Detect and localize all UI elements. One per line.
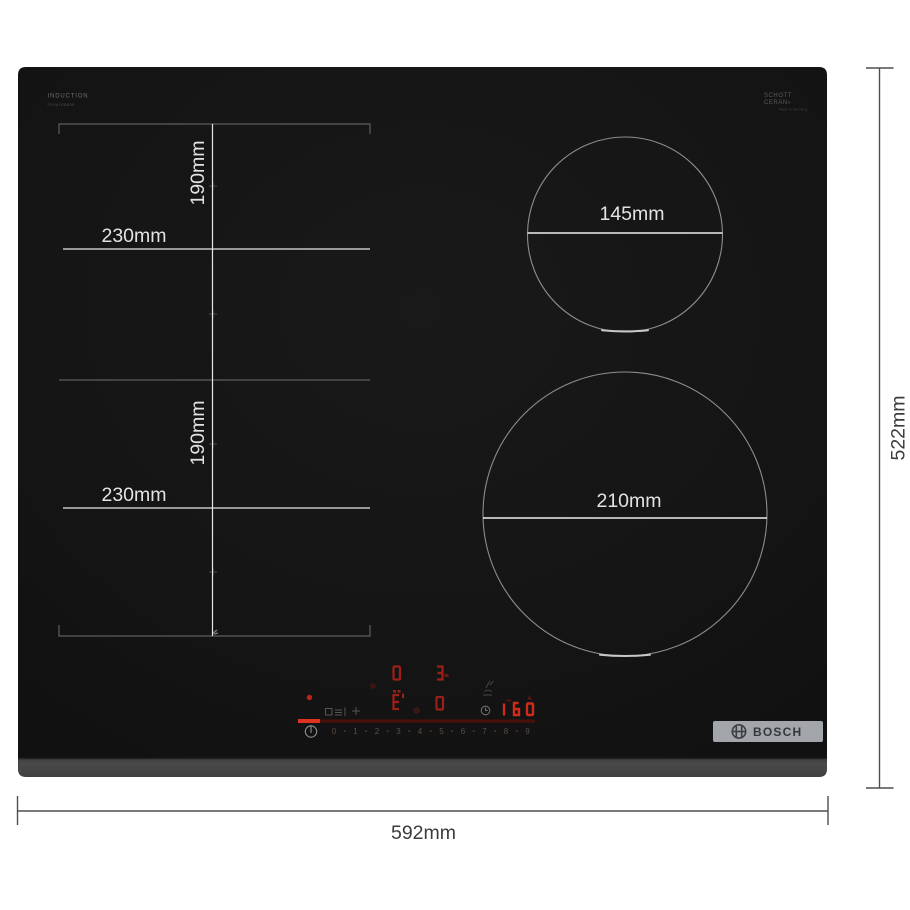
svg-text:9: 9	[525, 727, 530, 736]
svg-text:4: 4	[418, 727, 423, 736]
svg-text:8: 8	[504, 727, 509, 736]
svg-text:190mm: 190mm	[187, 400, 209, 465]
svg-text:230mm: 230mm	[101, 225, 166, 247]
svg-text:0: 0	[332, 727, 337, 736]
svg-text:INDUCTION: INDUCTION	[48, 94, 89, 100]
svg-text:190mm: 190mm	[187, 140, 209, 205]
svg-text:PVS61RBB5E: PVS61RBB5E	[48, 102, 76, 107]
svg-text:SCHOTT: SCHOTT	[764, 93, 792, 99]
svg-text:210mm: 210mm	[596, 490, 661, 512]
svg-text:230mm: 230mm	[101, 484, 166, 506]
svg-text:1: 1	[353, 727, 358, 736]
svg-text:522mm: 522mm	[888, 395, 910, 460]
svg-text:145mm: 145mm	[599, 203, 664, 225]
svg-text:Made in Germany: Made in Germany	[779, 108, 808, 112]
svg-text:7: 7	[482, 727, 487, 736]
svg-text:2: 2	[375, 727, 380, 736]
svg-text:592mm: 592mm	[391, 822, 456, 844]
svg-text:A: A	[528, 696, 532, 702]
svg-text:5: 5	[439, 727, 444, 736]
svg-text:CERAN®: CERAN®	[764, 100, 791, 106]
svg-text:3: 3	[396, 727, 401, 736]
svg-text:BOSCH: BOSCH	[753, 725, 802, 739]
svg-text:6: 6	[461, 727, 466, 736]
